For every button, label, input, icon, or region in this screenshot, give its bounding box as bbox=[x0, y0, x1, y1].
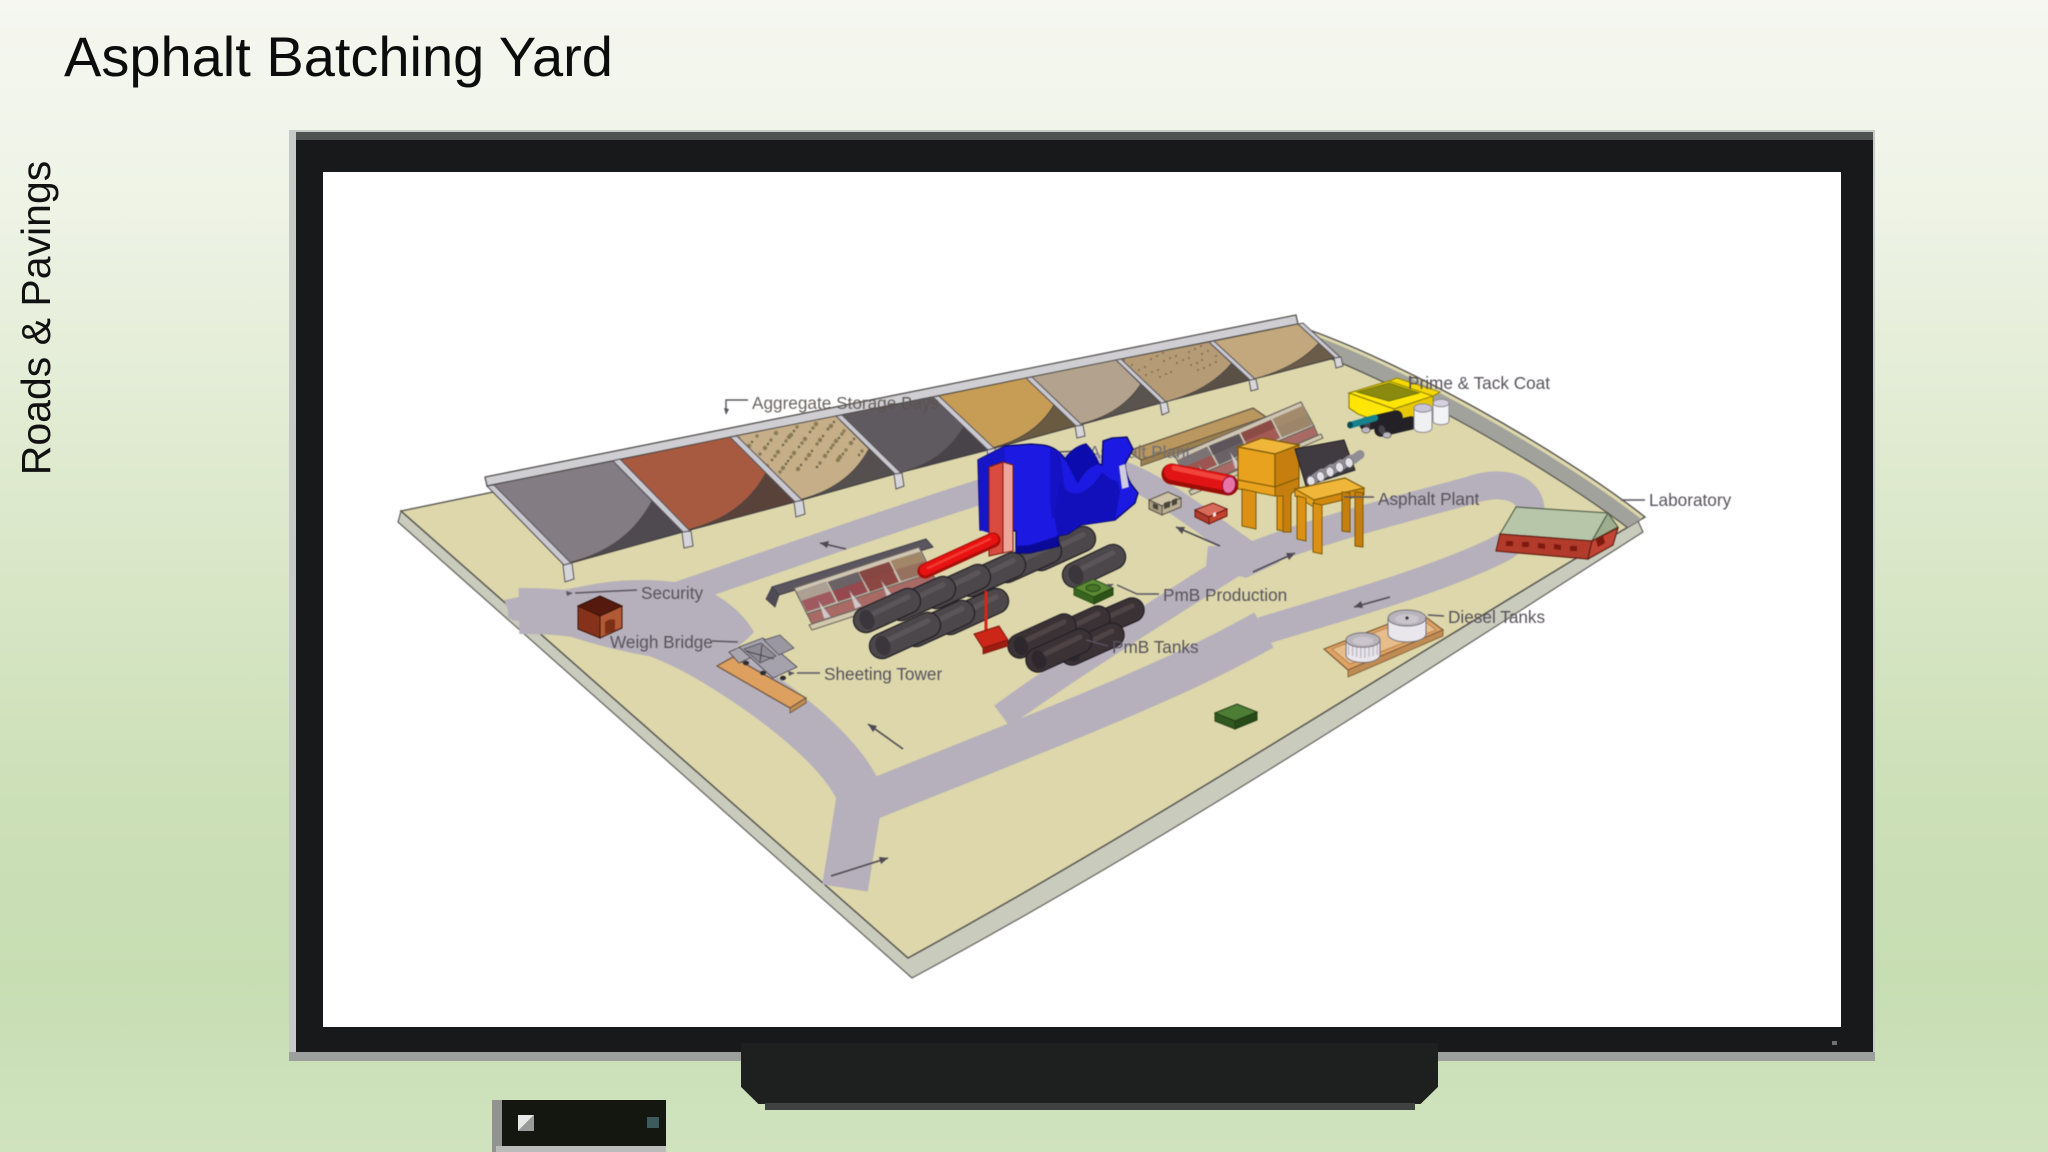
svg-text:Laboratory: Laboratory bbox=[1649, 490, 1732, 510]
svg-text:PmB Tanks: PmB Tanks bbox=[1112, 637, 1199, 657]
svg-text:Prime & Tack Coat: Prime & Tack Coat bbox=[1408, 373, 1550, 393]
svg-text:Security: Security bbox=[641, 583, 703, 603]
svg-text:Weigh Bridge: Weigh Bridge bbox=[610, 632, 713, 652]
svg-text:Diesel Tanks: Diesel Tanks bbox=[1448, 607, 1545, 627]
svg-text:Asphalt Plant: Asphalt Plant bbox=[1378, 489, 1480, 509]
svg-text:Aggregate Storage Bays: Aggregate Storage Bays bbox=[752, 393, 939, 413]
svg-text:Sheeting Tower: Sheeting Tower bbox=[824, 664, 942, 684]
svg-text:PmB Production: PmB Production bbox=[1163, 585, 1287, 605]
